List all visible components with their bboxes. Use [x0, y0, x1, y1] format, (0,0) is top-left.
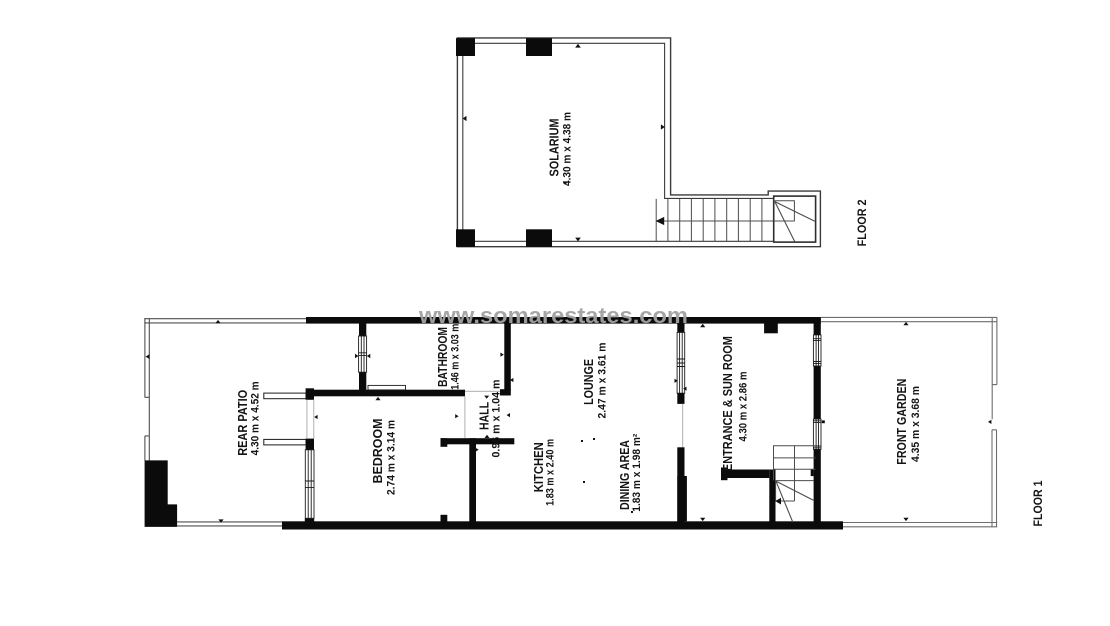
svg-text:BEDROOM: BEDROOM [371, 419, 385, 484]
svg-text:2.74 m x 3.14 m: 2.74 m x 3.14 m [386, 420, 398, 495]
svg-text:HALL: HALL [478, 402, 492, 430]
svg-text:FRONT GARDEN: FRONT GARDEN [895, 379, 909, 465]
svg-text:0.96 m x 1.04 m: 0.96 m x 1.04 m [491, 380, 503, 458]
svg-text:4.30 m x 4.38 m: 4.30 m x 4.38 m [562, 112, 574, 186]
svg-text:LOUNGE: LOUNGE [582, 359, 596, 405]
svg-text:1.46 m x 3.03 m: 1.46 m x 3.03 m [450, 324, 462, 390]
svg-text:www.somarestates.com: www.somarestates.com [418, 303, 688, 328]
svg-text:4.30 m x 4.52 m: 4.30 m x 4.52 m [250, 381, 262, 455]
svg-text:2.47 m x 3.61 m: 2.47 m x 3.61 m [597, 343, 609, 419]
svg-text:ENTRANCE & SUN ROOM: ENTRANCE & SUN ROOM [721, 336, 735, 471]
svg-text:4.35 m x 3.68 m: 4.35 m x 3.68 m [910, 386, 922, 462]
svg-text:4.30 m x 2.86 m: 4.30 m x 2.86 m [738, 372, 750, 442]
svg-text:1.83 m x 1.98 m²: 1.83 m x 1.98 m² [631, 433, 643, 511]
svg-text:FLOOR 1: FLOOR 1 [1031, 480, 1045, 526]
svg-text:SOLARIUM: SOLARIUM [547, 119, 561, 177]
svg-text:FLOOR 2: FLOOR 2 [855, 199, 869, 246]
svg-text:REAR PATIO: REAR PATIO [236, 390, 250, 456]
svg-text:1.83 m x 2.40 m: 1.83 m x 2.40 m [545, 439, 557, 506]
svg-text:BATHROOM: BATHROOM [436, 327, 450, 387]
